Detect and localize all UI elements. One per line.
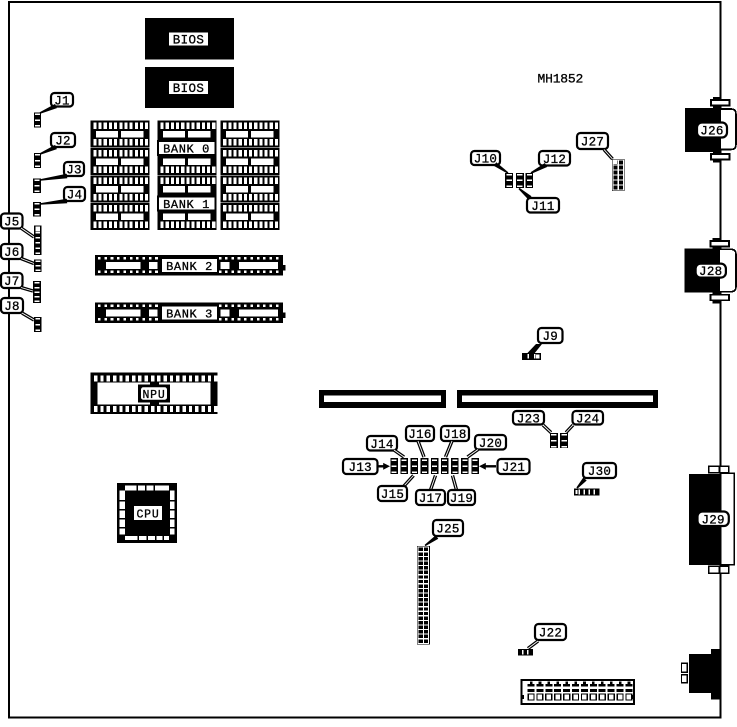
svg-text:J16: J16 (408, 428, 431, 442)
svg-text:J10: J10 (474, 153, 497, 167)
svg-text:J4: J4 (67, 189, 83, 203)
svg-text:J28: J28 (699, 265, 722, 279)
svg-text:BANK 2: BANK 2 (166, 260, 213, 274)
svg-text:J14: J14 (370, 438, 393, 452)
svg-text:J12: J12 (543, 153, 566, 167)
svg-text:J1: J1 (54, 94, 70, 108)
svg-text:J2: J2 (55, 135, 71, 149)
svg-text:J8: J8 (4, 300, 20, 314)
svg-text:J29: J29 (701, 513, 724, 527)
svg-text:J27: J27 (581, 136, 604, 150)
svg-text:J23: J23 (517, 412, 540, 426)
svg-text:J3: J3 (66, 164, 82, 178)
svg-text:CPU: CPU (136, 509, 159, 522)
svg-text:NPU: NPU (142, 389, 165, 402)
svg-text:J6: J6 (4, 246, 20, 260)
svg-text:J19: J19 (450, 492, 473, 506)
svg-text:J24: J24 (576, 412, 599, 426)
svg-text:J25: J25 (436, 523, 459, 537)
svg-text:J11: J11 (531, 200, 554, 214)
svg-text:J7: J7 (4, 275, 20, 289)
svg-text:J15: J15 (381, 488, 404, 502)
svg-text:MH1852: MH1852 (538, 72, 584, 87)
svg-text:J5: J5 (4, 216, 20, 230)
svg-text:J21: J21 (502, 461, 525, 475)
svg-text:J9: J9 (542, 330, 558, 344)
svg-text:J20: J20 (479, 437, 502, 451)
svg-text:BIOS: BIOS (173, 82, 205, 96)
svg-text:BANK 1: BANK 1 (163, 198, 210, 212)
svg-text:J22: J22 (539, 627, 562, 641)
svg-text:J13: J13 (349, 461, 372, 475)
svg-text:J18: J18 (443, 428, 466, 442)
svg-text:J30: J30 (588, 465, 611, 479)
svg-text:J26: J26 (700, 125, 723, 139)
svg-text:BIOS: BIOS (173, 34, 205, 48)
svg-text:BANK 3: BANK 3 (166, 308, 213, 322)
svg-text:J17: J17 (419, 492, 442, 506)
svg-text:BANK 0: BANK 0 (163, 143, 210, 157)
